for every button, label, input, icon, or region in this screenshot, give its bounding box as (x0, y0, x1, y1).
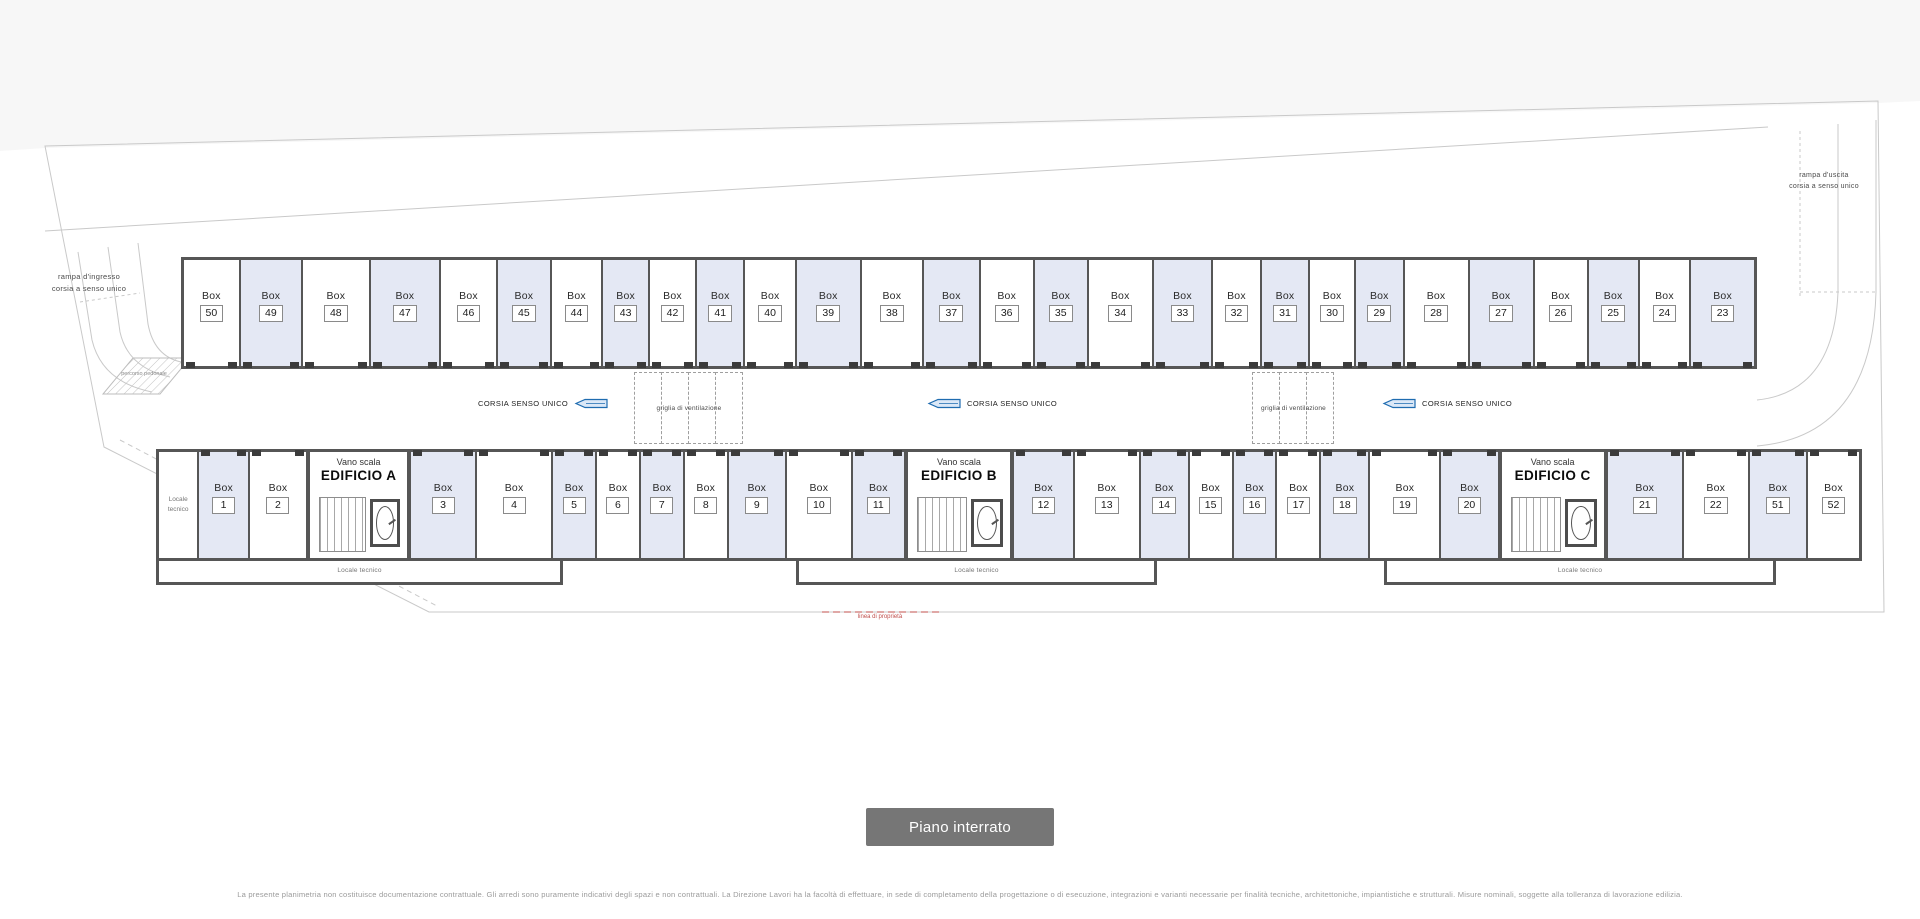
box-word-label: Box (515, 290, 534, 302)
box-number: 33 (1171, 305, 1195, 323)
box-number: 48 (324, 305, 348, 323)
box-word-label: Box (202, 290, 221, 302)
box-number: 26 (1549, 305, 1573, 323)
box-word-label: Box (616, 290, 635, 302)
box-word-label: Box (1323, 290, 1342, 302)
box-number: 3 (432, 497, 455, 515)
elevator-icon (370, 499, 400, 547)
box-number: 41 (708, 305, 732, 323)
box-number: 11 (867, 497, 890, 515)
box-number: 34 (1108, 305, 1132, 323)
box-number: 44 (565, 305, 589, 323)
box-31[interactable]: Box31 (1260, 260, 1309, 366)
elevator-cab-icon (376, 506, 395, 540)
box-42[interactable]: Box42 (648, 260, 695, 366)
box-word-label: Box (1713, 290, 1732, 302)
box-47[interactable]: Box47 (369, 260, 439, 366)
box-label: Box12 (1014, 445, 1073, 551)
box-number: 28 (1424, 305, 1448, 323)
box-number: 15 (1199, 497, 1223, 515)
box-word-label: Box (1051, 290, 1070, 302)
box-number: 6 (606, 497, 629, 515)
ramp-exit-label: rampa d'uscita corsia a senso unico (1772, 170, 1876, 192)
stairs-icon (1511, 497, 1561, 552)
box-43[interactable]: Box43 (601, 260, 648, 366)
ramp-entrance-line2: corsia a senso unico (34, 283, 144, 295)
elevator-cab-icon (1571, 506, 1590, 540)
one-way-text: CORSIA SENSO UNICO (478, 399, 568, 408)
stairwell-label: Vano scala (908, 457, 1010, 468)
box-number: 9 (745, 497, 768, 515)
box-11[interactable]: Box11 (851, 452, 904, 558)
box-word-label: Box (609, 482, 628, 494)
box-label: Box1 (199, 445, 248, 551)
tech-room-label: Locale tecnico (337, 567, 381, 574)
box-39[interactable]: Box39 (795, 260, 860, 366)
box-number: 42 (661, 305, 685, 323)
box-37[interactable]: Box37 (922, 260, 979, 366)
box-1[interactable]: Box1 (197, 452, 248, 558)
box-word-label: Box (1111, 290, 1130, 302)
elevator-icon (971, 499, 1003, 547)
box-34[interactable]: Box34 (1087, 260, 1152, 366)
box-label: Box27 (1470, 253, 1533, 359)
tech-room-label: Locale tecnico (159, 452, 197, 558)
box-number: 19 (1393, 497, 1417, 515)
box-word-label: Box (565, 482, 584, 494)
one-way-arrow-icon (1382, 398, 1416, 409)
box-label: Box34 (1089, 253, 1152, 359)
box-50[interactable]: Box50 (184, 260, 239, 366)
box-word-label: Box (269, 482, 288, 494)
box-6[interactable]: Box6 (595, 452, 639, 558)
box-label: Box7 (641, 445, 683, 551)
box-9[interactable]: Box9 (727, 452, 785, 558)
box-word-label: Box (262, 290, 281, 302)
box-number: 39 (816, 305, 840, 323)
box-label: Box26 (1535, 253, 1587, 359)
box-label: Box6 (597, 445, 639, 551)
elevator-cab-icon (977, 506, 996, 540)
box-38[interactable]: Box38 (860, 260, 922, 366)
ramp-entrance-line1: rampa d'ingresso (34, 271, 144, 283)
ramp-entrance-label: rampa d'ingresso corsia a senso unico (34, 271, 144, 295)
box-label: Box29 (1356, 253, 1403, 359)
box-number: 4 (503, 497, 526, 515)
box-number: 22 (1704, 497, 1728, 515)
box-word-label: Box (1396, 482, 1415, 494)
box-label: Box10 (787, 445, 851, 551)
box-number: 13 (1095, 497, 1119, 515)
box-17[interactable]: Box17 (1275, 452, 1319, 558)
ramp-exit-line2: corsia a senso unico (1772, 181, 1876, 192)
box-label: Box51 (1750, 445, 1806, 551)
one-way-arrow-icon (927, 398, 961, 409)
box-word-label: Box (1768, 482, 1787, 494)
offsite-area (0, 0, 1920, 151)
box-label: Box11 (853, 445, 904, 551)
box-label: Box25 (1589, 253, 1638, 359)
box-label: Box3 (411, 445, 475, 551)
box-label: Box4 (477, 445, 551, 551)
tech-room-label: Locale tecnico (954, 567, 998, 574)
box-word-label: Box (1245, 482, 1264, 494)
stairwell-header: Vano scalaEDIFICIO A (310, 452, 407, 485)
box-label: Box20 (1441, 445, 1497, 551)
box-word-label: Box (1336, 482, 1355, 494)
box-number: 10 (807, 497, 831, 515)
box-number: 5 (563, 497, 586, 515)
building-name: EDIFICIO B (908, 468, 1010, 485)
box-number: 45 (512, 305, 536, 323)
box-word-label: Box (1034, 482, 1053, 494)
one-way-text: CORSIA SENSO UNICO (967, 399, 1057, 408)
one-way-lane-label-2: CORSIA SENSO UNICO (927, 398, 1057, 409)
box-label: Box47 (371, 253, 439, 359)
box-word-label: Box (396, 290, 415, 302)
box-label: Box14 (1141, 445, 1188, 551)
box-7[interactable]: Box7 (639, 452, 683, 558)
box-number: 35 (1049, 305, 1073, 323)
box-word-label: Box (747, 482, 766, 494)
box-8[interactable]: Box8 (683, 452, 727, 558)
stairwell-edificio-a: Vano scalaEDIFICIO A (306, 452, 407, 558)
box-number: 38 (880, 305, 904, 323)
box-49[interactable]: Box49 (239, 260, 301, 366)
box-number: 21 (1633, 497, 1657, 515)
box-35[interactable]: Box35 (1033, 260, 1087, 366)
disclaimer-text: La presente planimetria non costituisce … (0, 890, 1920, 899)
box-label: Box8 (685, 445, 727, 551)
box-word-label: Box (505, 482, 524, 494)
building-name: EDIFICIO C (1502, 468, 1604, 485)
entrance-ramp-lanes (78, 243, 181, 392)
box-label: Box19 (1370, 445, 1439, 551)
box-word-label: Box (1227, 290, 1246, 302)
stairs-icon (917, 497, 967, 552)
box-word-label: Box (1097, 482, 1116, 494)
box-28[interactable]: Box28 (1403, 260, 1468, 366)
ventilation-grille-1: griglia di ventilazione (635, 372, 743, 444)
ventilation-grille-label: griglia di ventilazione (1253, 372, 1334, 444)
stairwell-label: Vano scala (310, 457, 407, 468)
box-word-label: Box (869, 482, 888, 494)
box-label: Box31 (1262, 253, 1309, 359)
box-10[interactable]: Box10 (785, 452, 851, 558)
stairwell-header: Vano scalaEDIFICIO C (1502, 452, 1604, 485)
box-word-label: Box (1427, 290, 1446, 302)
ventilation-grille-2: griglia di ventilazione (1253, 372, 1334, 444)
setback-line (45, 127, 1768, 231)
pedestrian-path-label: percorso pedonale (104, 371, 184, 377)
box-number: 27 (1489, 305, 1513, 323)
stairs-icon (319, 497, 367, 552)
tech-apron-c: Locale tecnico (1384, 558, 1776, 585)
box-label: Box17 (1277, 445, 1319, 551)
garage-row-bottom: Locale tecnicoBox1Box2Vano scalaEDIFICIO… (156, 449, 1862, 561)
box-label: Box45 (498, 253, 550, 359)
box-number: 2 (266, 497, 289, 515)
box-word-label: Box (1370, 290, 1389, 302)
box-number: 14 (1152, 497, 1176, 515)
box-label: Box50 (184, 253, 239, 359)
box-label: Box18 (1321, 445, 1368, 551)
box-16[interactable]: Box16 (1232, 452, 1276, 558)
box-word-label: Box (1635, 482, 1654, 494)
one-way-arrow-icon (574, 398, 608, 409)
tech-apron-b: Locale tecnico (796, 558, 1157, 585)
box-number: 20 (1458, 497, 1482, 515)
box-20[interactable]: Box20 (1439, 452, 1497, 558)
box-word-label: Box (663, 290, 682, 302)
one-way-lane-label-3: CORSIA SENSO UNICO (1382, 398, 1512, 409)
box-word-label: Box (1706, 482, 1725, 494)
box-word-label: Box (459, 290, 478, 302)
elevator-icon (1565, 499, 1597, 547)
box-number: 30 (1320, 305, 1344, 323)
box-label: Box2 (250, 445, 306, 551)
box-label: Box42 (650, 253, 695, 359)
box-24[interactable]: Box24 (1638, 260, 1689, 366)
box-number: 43 (614, 305, 638, 323)
box-27[interactable]: Box27 (1468, 260, 1533, 366)
box-label: Box5 (553, 445, 595, 551)
property-line-label: linea di proprietà (815, 614, 945, 620)
box-label: Box52 (1808, 445, 1859, 551)
box-number: 52 (1822, 497, 1846, 515)
box-52[interactable]: Box52 (1806, 452, 1859, 558)
box-number: 17 (1287, 497, 1311, 515)
box-label: Box16 (1234, 445, 1276, 551)
ramp-exit-line1: rampa d'uscita (1772, 170, 1876, 181)
box-32[interactable]: Box32 (1211, 260, 1260, 366)
box-number: 24 (1653, 305, 1677, 323)
box-word-label: Box (326, 290, 345, 302)
box-5[interactable]: Box5 (551, 452, 595, 558)
box-label: Box30 (1310, 253, 1354, 359)
box-word-label: Box (942, 290, 961, 302)
stairwell-edificio-c: Vano scalaEDIFICIO C (1498, 452, 1604, 558)
driveway-corridor: CORSIA SENSO UNICO CORSIA SENSO UNICO CO… (181, 369, 1757, 449)
one-way-lane-label-1: CORSIA SENSO UNICO (478, 398, 608, 409)
box-word-label: Box (1276, 290, 1295, 302)
box-number: 7 (650, 497, 673, 515)
box-word-label: Box (1155, 482, 1174, 494)
box-51[interactable]: Box51 (1748, 452, 1806, 558)
box-46[interactable]: Box46 (439, 260, 496, 366)
box-44[interactable]: Box44 (550, 260, 601, 366)
box-40[interactable]: Box40 (743, 260, 794, 366)
box-word-label: Box (1551, 290, 1570, 302)
box-36[interactable]: Box36 (979, 260, 1033, 366)
tech-room-cell: Locale tecnico (159, 452, 197, 558)
box-word-label: Box (1604, 290, 1623, 302)
box-label: Box24 (1640, 253, 1689, 359)
box-3[interactable]: Box3 (407, 452, 475, 558)
box-label: Box38 (862, 253, 922, 359)
box-word-label: Box (1201, 482, 1220, 494)
box-number: 16 (1243, 497, 1267, 515)
box-label: Box15 (1190, 445, 1232, 551)
box-word-label: Box (1655, 290, 1674, 302)
box-word-label: Box (1824, 482, 1843, 494)
box-14[interactable]: Box14 (1139, 452, 1188, 558)
box-21[interactable]: Box21 (1604, 452, 1682, 558)
box-number: 37 (939, 305, 963, 323)
box-word-label: Box (696, 482, 715, 494)
box-45[interactable]: Box45 (496, 260, 550, 366)
exit-ramp-lanes (1757, 120, 1876, 446)
box-number: 8 (694, 497, 717, 515)
box-26[interactable]: Box26 (1533, 260, 1587, 366)
box-number: 23 (1711, 305, 1735, 323)
box-12[interactable]: Box12 (1010, 452, 1073, 558)
box-30[interactable]: Box30 (1308, 260, 1354, 366)
box-word-label: Box (214, 482, 233, 494)
box-number: 25 (1601, 305, 1625, 323)
box-18[interactable]: Box18 (1319, 452, 1368, 558)
box-number: 51 (1766, 497, 1790, 515)
box-48[interactable]: Box48 (301, 260, 369, 366)
box-number: 18 (1333, 497, 1357, 515)
box-label: Box40 (745, 253, 794, 359)
one-way-text: CORSIA SENSO UNICO (1422, 399, 1512, 408)
box-word-label: Box (809, 482, 828, 494)
ventilation-grille-label: griglia di ventilazione (635, 372, 743, 444)
box-label: Box35 (1035, 253, 1087, 359)
box-number: 32 (1225, 305, 1249, 323)
building-name: EDIFICIO A (310, 468, 407, 485)
box-label: Box21 (1608, 445, 1682, 551)
box-number: 47 (393, 305, 417, 323)
box-number: 1 (212, 497, 235, 515)
box-33[interactable]: Box33 (1152, 260, 1211, 366)
box-label: Box46 (441, 253, 496, 359)
box-number: 50 (200, 305, 224, 323)
box-number: 40 (758, 305, 782, 323)
box-label: Box44 (552, 253, 601, 359)
box-number: 36 (995, 305, 1019, 323)
box-number: 31 (1273, 305, 1297, 323)
box-41[interactable]: Box41 (695, 260, 744, 366)
stairwell-label: Vano scala (1502, 457, 1604, 468)
box-word-label: Box (1173, 290, 1192, 302)
box-label: Box43 (603, 253, 648, 359)
box-label: Box49 (241, 253, 301, 359)
box-label: Box33 (1154, 253, 1211, 359)
piano-interrato-button[interactable]: Piano interrato (866, 808, 1054, 846)
box-label: Box9 (729, 445, 785, 551)
box-2[interactable]: Box2 (248, 452, 306, 558)
box-word-label: Box (882, 290, 901, 302)
box-word-label: Box (761, 290, 780, 302)
box-15[interactable]: Box15 (1188, 452, 1232, 558)
stairwell-header: Vano scalaEDIFICIO B (908, 452, 1010, 485)
box-number: 46 (457, 305, 481, 323)
garage-row-top: Box50Box49Box48Box47Box46Box45Box44Box43… (181, 257, 1757, 369)
box-number: 49 (259, 305, 283, 323)
box-label: Box36 (981, 253, 1033, 359)
box-label: Box13 (1075, 445, 1139, 551)
box-number: 29 (1367, 305, 1391, 323)
box-word-label: Box (434, 482, 453, 494)
tech-apron-a: Locale tecnico (156, 558, 563, 585)
box-word-label: Box (567, 290, 586, 302)
box-word-label: Box (653, 482, 672, 494)
box-label: Box22 (1684, 445, 1748, 551)
box-word-label: Box (711, 290, 730, 302)
box-19[interactable]: Box19 (1368, 452, 1439, 558)
box-25[interactable]: Box25 (1587, 260, 1638, 366)
box-label: Box28 (1405, 253, 1468, 359)
box-13[interactable]: Box13 (1073, 452, 1139, 558)
box-word-label: Box (819, 290, 838, 302)
box-22[interactable]: Box22 (1682, 452, 1748, 558)
floor-plan-canvas: rampa d'ingresso corsia a senso unico ra… (0, 0, 1920, 919)
box-label: Box23 (1691, 253, 1754, 359)
box-29[interactable]: Box29 (1354, 260, 1403, 366)
box-word-label: Box (1460, 482, 1479, 494)
box-23[interactable]: Box23 (1689, 260, 1754, 366)
box-label: Box41 (697, 253, 744, 359)
tech-room-label: Locale tecnico (1558, 567, 1602, 574)
box-4[interactable]: Box4 (475, 452, 551, 558)
box-word-label: Box (1492, 290, 1511, 302)
box-label: Box37 (924, 253, 979, 359)
box-word-label: Box (997, 290, 1016, 302)
box-number: 12 (1032, 497, 1056, 515)
box-label: Box32 (1213, 253, 1260, 359)
stairwell-edificio-b: Vano scalaEDIFICIO B (904, 452, 1010, 558)
box-word-label: Box (1289, 482, 1308, 494)
box-label: Box39 (797, 253, 860, 359)
box-label: Box48 (303, 253, 369, 359)
